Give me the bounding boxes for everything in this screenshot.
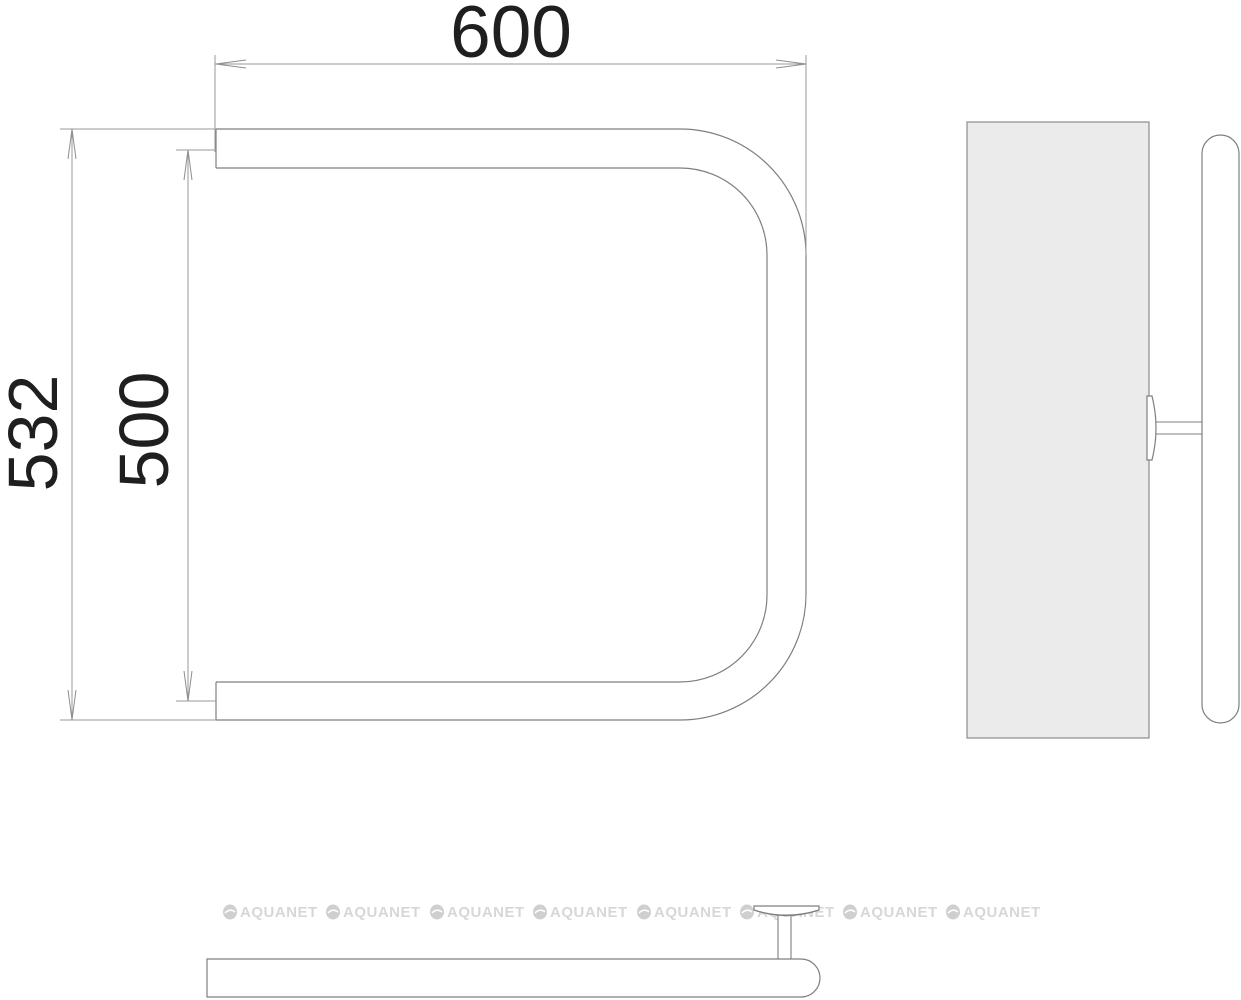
watermark-label: AQUANET [240,904,318,921]
watermark: AQUANET [223,904,318,921]
watermark-label: AQUANET [447,904,525,921]
watermark-label: AQUANET [654,904,732,921]
tube-inner-contour [216,168,767,682]
watermark-label: AQUANET [963,904,1041,921]
wall-panel [967,122,1149,738]
mount-stem-side [1156,422,1202,434]
watermark-label: AQUANET [550,904,628,921]
watermark: AQUANET [533,904,628,921]
watermark: AQUANET [637,904,732,921]
watermark: AQUANET [430,904,525,921]
drawing-canvas: AQUANET AQUANET AQUANET AQUANET AQUANET … [0,0,1241,1000]
watermark: AQUANET [326,904,421,921]
front-view [216,129,806,720]
mount-flange-side [1147,396,1156,460]
dimension-label-532: 532 [0,375,72,492]
tube-outer-contour [216,129,806,720]
watermark: AQUANET [946,904,1041,921]
watermark-label: AQUANET [343,904,421,921]
side-view [967,122,1239,738]
watermark-row: AQUANET AQUANET AQUANET AQUANET AQUANET … [223,904,1041,921]
rail-bottom [207,959,820,997]
technical-drawing: AQUANET AQUANET AQUANET AQUANET AQUANET … [0,0,1241,1000]
watermark: AQUANET [843,904,938,921]
watermark-label: AQUANET [860,904,938,921]
rail-profile [1202,135,1239,723]
dimension-label-600: 600 [450,0,572,73]
dimension-width-600: 600 [215,0,806,255]
dimension-label-500: 500 [105,372,183,489]
dimension-height-500: 500 [105,150,216,701]
